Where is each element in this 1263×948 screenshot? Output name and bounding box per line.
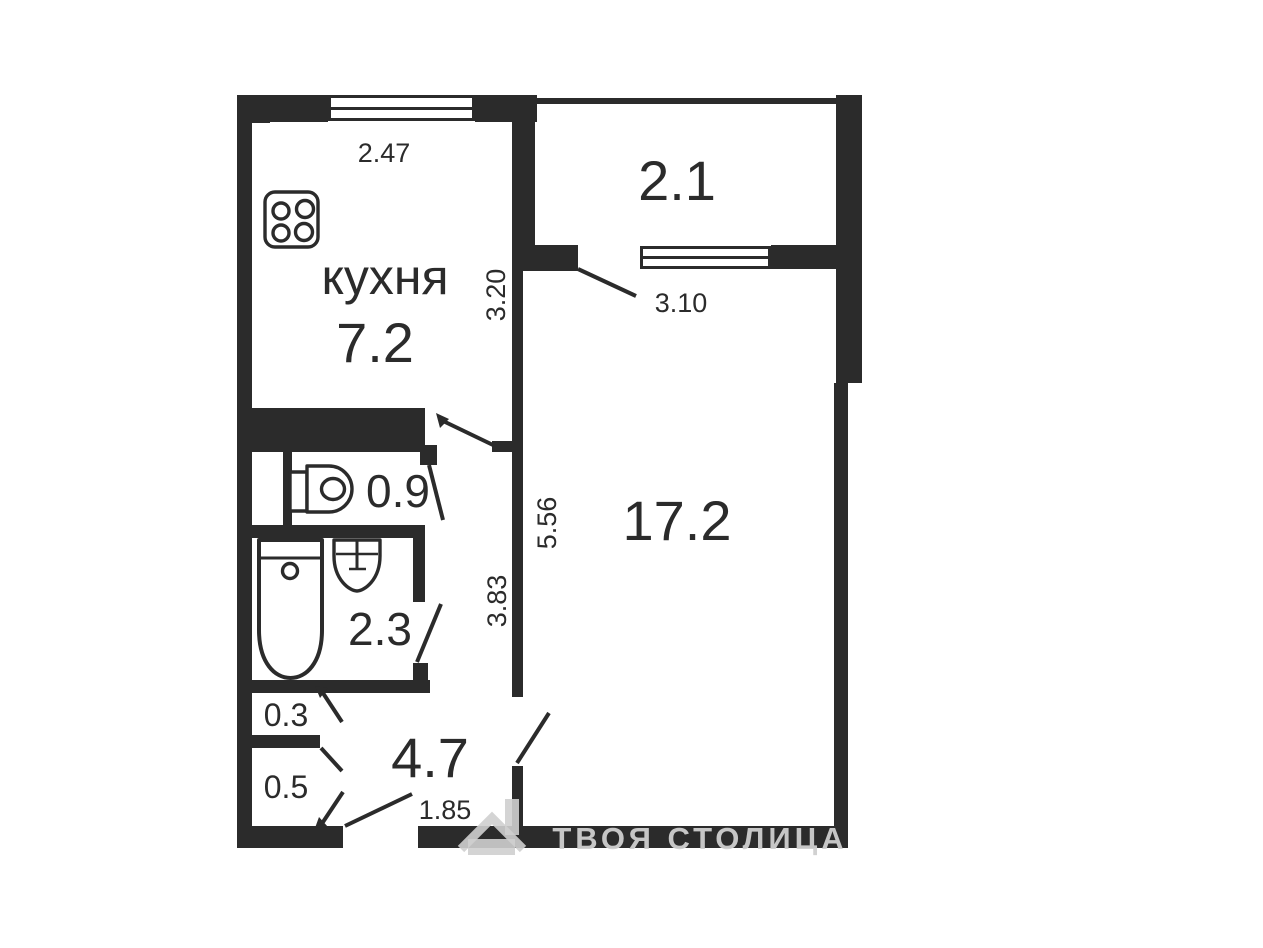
wall-balcony-right-exterior: [836, 95, 862, 383]
balcony-area-label: 2.1: [638, 149, 716, 212]
bathroom-area-label: 2.3: [348, 603, 412, 655]
wall-right-exterior: [834, 383, 848, 848]
vestibule-door-swing: [321, 792, 343, 825]
dim-entrance-width: 1.85: [419, 795, 472, 825]
wall-left-exterior: [237, 95, 252, 848]
bathroom-door-swing: [417, 604, 441, 662]
floor-plan-svg: 2.47 кухня 7.2 2.1 3.10 3.20 0.9 5.56 17…: [0, 0, 1263, 948]
wall-closet-divider: [252, 735, 320, 748]
wall-kitchen-door-stub: [420, 445, 437, 465]
stove-burner: [297, 201, 314, 218]
toilet-area-label: 0.9: [366, 465, 430, 517]
stove-icon: [265, 192, 318, 247]
kitchen-door-swing: [441, 420, 493, 445]
dim-kitchen-depth: 3.20: [481, 269, 511, 322]
closet-bottom-area-label: 0.5: [264, 769, 308, 805]
kitchen-area-label: 7.2: [336, 311, 414, 374]
house-logo-body: [468, 839, 515, 855]
dim-living-room-depth: 5.56: [532, 497, 562, 550]
dim-balcony-width: 3.10: [655, 288, 708, 318]
watermark-text: ТВОЯ СТОЛИЦА: [552, 821, 847, 856]
bathtub-outline: [259, 540, 322, 678]
bathtub-drain: [283, 564, 298, 579]
stove-burner: [273, 203, 289, 219]
kitchen-window: [328, 97, 475, 120]
wall-kitchen-balcony-divider: [512, 95, 535, 248]
bathtub-icon: [259, 540, 322, 678]
wall-balcony-bottom-left: [512, 245, 578, 271]
closet-top-area-label: 0.3: [264, 697, 308, 733]
wall-bottom-left: [237, 826, 343, 848]
balcony-window: [640, 248, 771, 268]
kitchen-name-label: кухня: [321, 249, 448, 305]
stove-burner: [296, 224, 313, 241]
wall-kitchen-bottom: [237, 408, 425, 452]
wall-toilet-bathroom-divider: [252, 525, 416, 538]
closet-top-door-swing: [321, 690, 342, 722]
entrance-door-swing: [345, 794, 412, 826]
wall-balcony-bottom-right: [771, 245, 836, 269]
balcony-door-swing: [578, 269, 636, 296]
stove-burner: [273, 225, 289, 241]
living-room-area-label: 17.2: [623, 489, 732, 552]
toilet-icon: [290, 466, 352, 512]
wall-bathroom-bottom: [237, 680, 430, 693]
floor-plan-canvas: 2.47 кухня 7.2 2.1 3.10 3.20 0.9 5.56 17…: [0, 0, 1263, 948]
wall-kitchen-door-nib: [492, 441, 512, 452]
kitchen-door-hinge-icon: [436, 413, 449, 428]
toilet-tank: [290, 472, 307, 511]
sink-icon: [334, 540, 380, 591]
toilet-door-swing: [429, 465, 443, 520]
dim-kitchen-width: 2.47: [358, 138, 411, 168]
living-room-door-swing: [517, 713, 549, 763]
wall-living-room-left: [512, 271, 523, 697]
wall-top-kitchen-left: [237, 95, 328, 122]
closet-bottom-door-swing: [321, 748, 342, 771]
dim-hall-depth: 3.83: [482, 575, 512, 628]
wall-bathroom-right: [413, 525, 425, 602]
hallway-area-label: 4.7: [391, 726, 469, 789]
balcony-railing: [535, 98, 836, 104]
toilet-seat: [322, 479, 345, 500]
